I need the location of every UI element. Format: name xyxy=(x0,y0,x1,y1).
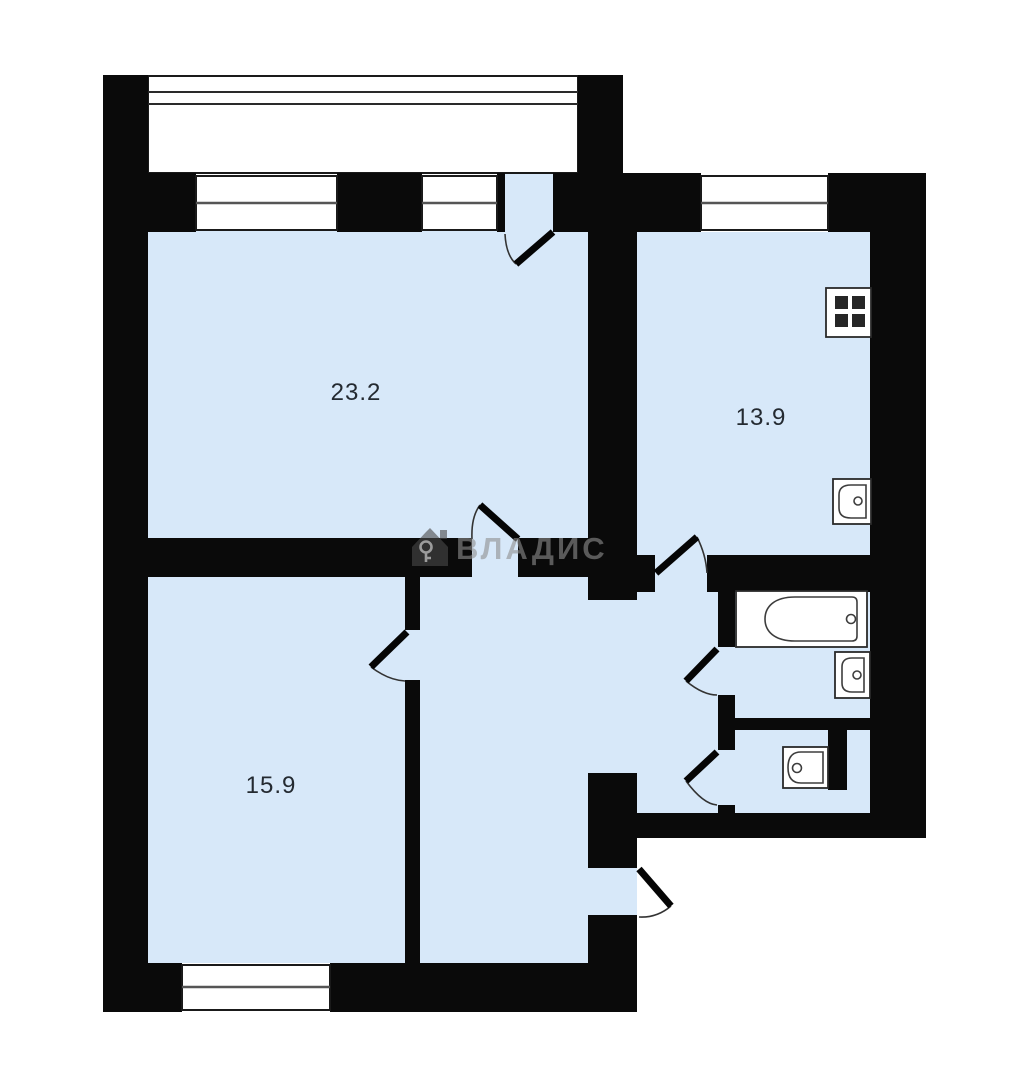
kitchen-door-opening xyxy=(655,555,707,592)
floor-plan-page: 23.2 13.9 15.9 ВЛАДИС xyxy=(0,0,1010,1080)
window xyxy=(196,176,337,230)
kitchen-label: 13.9 xyxy=(736,404,787,431)
hall-connection xyxy=(588,600,637,773)
wall-top-kitchen xyxy=(637,173,701,232)
wall-kitchen-bottom xyxy=(707,555,872,592)
bedroom-door-opening xyxy=(405,630,420,680)
entrance-door xyxy=(639,869,671,917)
wall-right-exterior xyxy=(870,173,926,838)
duct-shaft xyxy=(828,730,847,790)
bathtub-icon xyxy=(736,591,867,647)
wall-top xyxy=(553,173,637,232)
wall-top xyxy=(497,173,505,232)
wall-top xyxy=(337,173,422,232)
kitchen-sink-icon xyxy=(833,479,871,524)
balcony-door-opening xyxy=(505,173,553,233)
bedroom-area xyxy=(148,577,405,963)
stove-icon xyxy=(826,288,871,337)
floor-plan: 23.2 13.9 15.9 ВЛАДИС xyxy=(0,0,1010,1080)
wall-bathroom-left xyxy=(718,592,735,647)
window xyxy=(182,965,330,1010)
wall-kitchen-bottom xyxy=(637,555,655,592)
living-room-label: 23.2 xyxy=(331,379,382,406)
watermark-text: ВЛАДИС xyxy=(456,531,608,566)
wall-entrance xyxy=(588,915,637,963)
watermark: ВЛАДИС xyxy=(412,528,608,566)
bedroom-label: 15.9 xyxy=(246,772,297,799)
hall-right-area xyxy=(637,592,718,813)
entrance-opening xyxy=(588,868,637,915)
wall-top xyxy=(148,173,196,232)
wall-entrance xyxy=(588,773,637,868)
bathroom-door-opening xyxy=(718,647,735,695)
balcony-floor xyxy=(148,76,578,173)
wall-bottom-right-exterior xyxy=(637,813,926,838)
wall-bedroom-partition xyxy=(405,680,420,963)
hall-middle-area xyxy=(420,577,588,963)
bathroom-sink-icon xyxy=(835,652,870,698)
wall-bottom-exterior xyxy=(103,963,182,1012)
wall-left-exterior xyxy=(103,75,148,1012)
wall-bath-toilet-divider xyxy=(718,718,870,730)
window xyxy=(422,176,497,230)
wall-bedroom-partition xyxy=(405,577,420,630)
balcony xyxy=(148,76,578,173)
wall-bottom-exterior xyxy=(330,963,637,1012)
toilet-icon xyxy=(783,747,828,788)
window xyxy=(701,176,828,230)
wall-balcony-right xyxy=(578,75,623,175)
toilet-door-opening xyxy=(718,750,735,805)
